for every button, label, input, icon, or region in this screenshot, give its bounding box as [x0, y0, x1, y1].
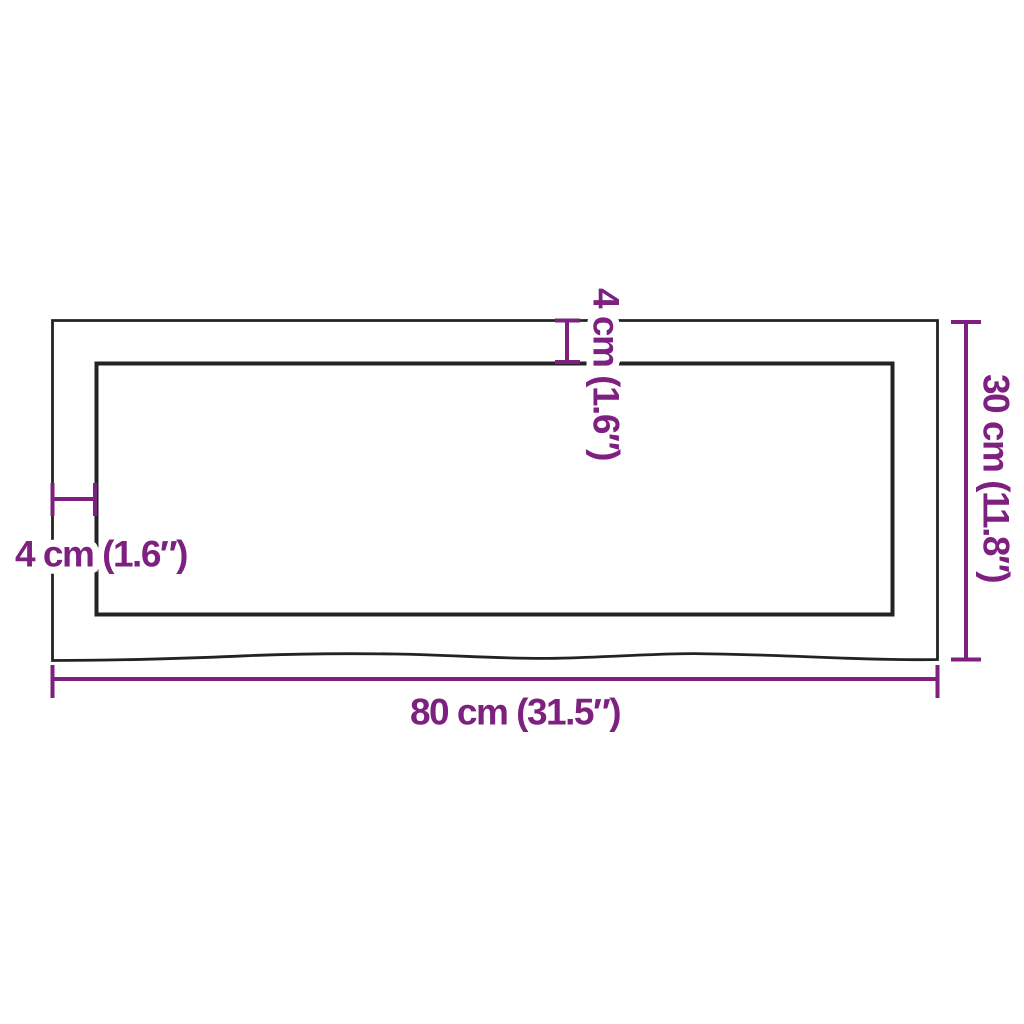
board-inner-outline	[97, 364, 893, 615]
diagram-canvas	[0, 0, 1024, 1024]
left-thickness-marker	[53, 483, 96, 516]
top-thickness-marker	[555, 321, 580, 363]
left-thickness-label: 4 cm (1.6″)	[15, 536, 187, 573]
board-outer-outline	[53, 321, 938, 661]
product-dimension-diagram: 80 cm (31.5″) 30 cm (11.8″) 4 cm (1.6″) …	[0, 0, 1024, 1024]
top-thickness-label: 4 cm (1.6″)	[588, 288, 625, 460]
width-dimension-label: 80 cm (31.5″)	[410, 694, 620, 731]
height-dimension-label: 30 cm (11.8″)	[978, 374, 1015, 582]
